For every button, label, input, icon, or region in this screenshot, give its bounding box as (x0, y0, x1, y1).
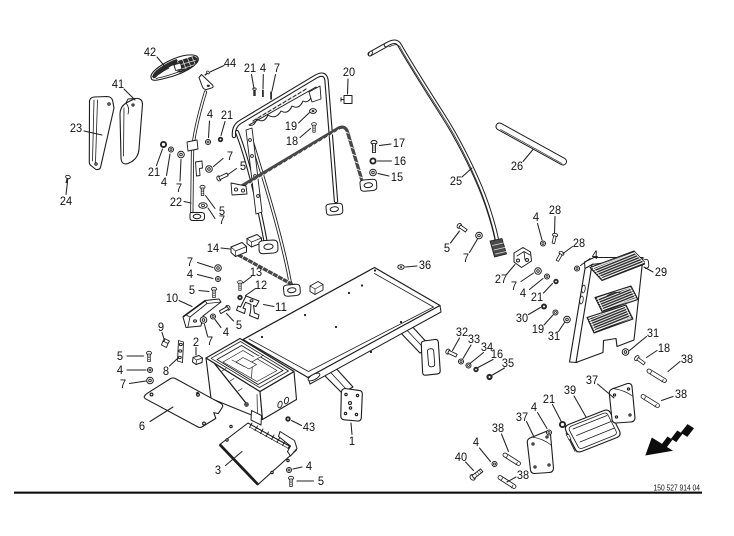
svg-text:5: 5 (444, 241, 450, 255)
svg-text:10: 10 (166, 291, 178, 305)
svg-text:7: 7 (511, 279, 517, 293)
svg-text:7: 7 (227, 149, 233, 163)
svg-text:23: 23 (70, 121, 82, 135)
svg-text:19: 19 (532, 322, 544, 336)
svg-text:5: 5 (318, 474, 324, 488)
svg-text:5: 5 (240, 159, 246, 173)
svg-text:5: 5 (117, 349, 123, 363)
svg-text:36: 36 (419, 258, 431, 272)
svg-text:4: 4 (473, 435, 479, 449)
svg-text:31: 31 (548, 329, 560, 343)
svg-text:27: 27 (495, 272, 507, 286)
svg-text:14: 14 (207, 241, 219, 255)
svg-text:42: 42 (144, 45, 156, 59)
svg-text:4: 4 (117, 363, 123, 377)
svg-text:19: 19 (285, 119, 297, 133)
svg-text:11: 11 (275, 300, 288, 314)
svg-text:4: 4 (533, 210, 539, 224)
svg-text:4: 4 (531, 400, 537, 414)
svg-text:38: 38 (681, 352, 693, 366)
svg-text:2: 2 (193, 335, 199, 349)
svg-text:5: 5 (236, 318, 242, 332)
svg-text:25: 25 (450, 174, 462, 188)
svg-text:21: 21 (543, 392, 555, 406)
svg-text:7: 7 (120, 377, 126, 391)
svg-text:26: 26 (511, 159, 523, 173)
svg-text:150 527 914 04: 150 527 914 04 (654, 484, 701, 493)
svg-text:4: 4 (207, 107, 213, 121)
svg-text:39: 39 (564, 383, 576, 397)
svg-text:21: 21 (531, 290, 543, 304)
svg-text:38: 38 (492, 421, 504, 435)
svg-text:21: 21 (148, 165, 160, 179)
svg-text:28: 28 (549, 203, 561, 217)
svg-text:12: 12 (255, 278, 267, 292)
svg-text:4: 4 (223, 325, 229, 339)
svg-text:4: 4 (592, 248, 598, 262)
svg-text:4: 4 (260, 61, 266, 75)
svg-text:7: 7 (176, 181, 182, 195)
svg-text:8: 8 (163, 364, 169, 378)
svg-text:35: 35 (502, 356, 514, 370)
svg-text:32: 32 (456, 325, 468, 339)
svg-text:20: 20 (343, 65, 355, 79)
svg-text:5: 5 (189, 283, 195, 297)
svg-text:7: 7 (274, 61, 280, 75)
svg-text:21: 21 (244, 61, 256, 75)
svg-text:9: 9 (158, 320, 164, 334)
svg-text:30: 30 (516, 311, 528, 325)
svg-text:22: 22 (170, 195, 182, 209)
svg-text:15: 15 (391, 170, 403, 184)
svg-text:4: 4 (161, 175, 167, 189)
svg-text:31: 31 (647, 326, 659, 340)
svg-text:40: 40 (455, 450, 467, 464)
svg-text:18: 18 (286, 134, 298, 148)
svg-text:43: 43 (303, 420, 315, 434)
svg-text:16: 16 (394, 154, 406, 168)
svg-text:17: 17 (393, 136, 405, 150)
svg-text:38: 38 (675, 387, 687, 401)
svg-text:7: 7 (207, 334, 213, 348)
svg-text:1: 1 (349, 434, 355, 448)
svg-text:4: 4 (306, 459, 312, 473)
svg-text:41: 41 (112, 77, 124, 91)
svg-text:38: 38 (517, 468, 529, 482)
svg-text:13: 13 (250, 265, 262, 279)
svg-text:24: 24 (60, 194, 72, 208)
svg-text:37: 37 (516, 410, 528, 424)
svg-text:44: 44 (224, 56, 236, 70)
svg-text:37: 37 (586, 373, 598, 387)
svg-text:28: 28 (573, 236, 585, 250)
svg-text:3: 3 (215, 463, 221, 477)
svg-text:4: 4 (187, 267, 193, 281)
svg-text:29: 29 (655, 265, 667, 279)
svg-text:33: 33 (468, 332, 480, 346)
svg-text:6: 6 (139, 419, 145, 433)
svg-text:7: 7 (219, 213, 225, 227)
svg-text:21: 21 (221, 108, 233, 122)
svg-text:18: 18 (658, 341, 670, 355)
svg-text:7: 7 (463, 251, 469, 265)
svg-text:4: 4 (520, 286, 526, 300)
